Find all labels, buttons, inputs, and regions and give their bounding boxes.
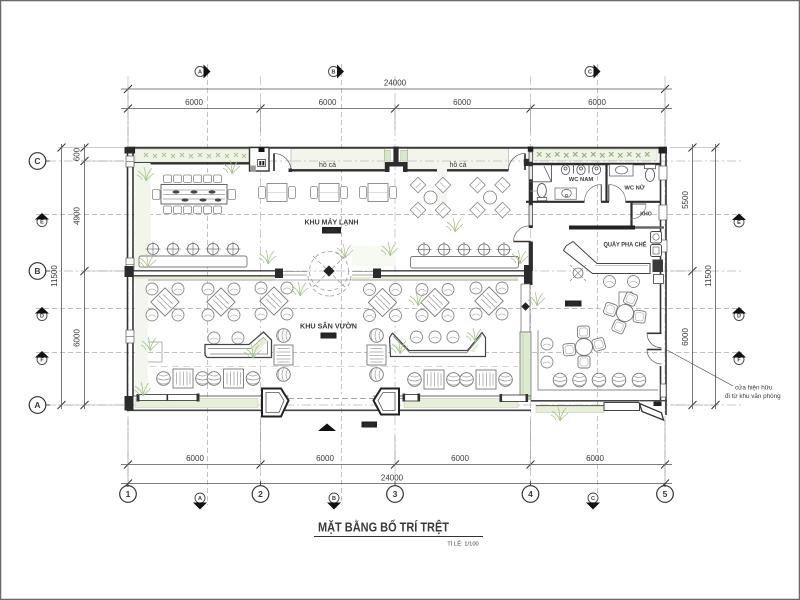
svg-text:hồ cá: hồ cá: [319, 160, 336, 169]
svg-text:4900: 4900: [73, 207, 82, 225]
svg-text:KHU SÂN VƯỜN: KHU SÂN VƯỜN: [300, 322, 357, 331]
svg-text:C: C: [588, 70, 592, 76]
svg-text:E: E: [737, 220, 741, 226]
svg-text:24000: 24000: [384, 79, 407, 88]
svg-text:QUẦY PHA CHẾ: QUẦY PHA CHẾ: [604, 242, 647, 249]
svg-text:đi từ khu văn phòng: đi từ khu văn phòng: [725, 393, 781, 400]
svg-text:6000: 6000: [681, 328, 690, 346]
svg-text:3: 3: [393, 489, 398, 499]
svg-text:Ø800: Ø800: [326, 228, 338, 233]
svg-text:A: A: [34, 400, 40, 410]
svg-text:Ø800: Ø800: [323, 333, 334, 338]
svg-text:D: D: [737, 314, 741, 320]
svg-text:B: B: [332, 496, 336, 502]
svg-text:6000: 6000: [186, 454, 204, 463]
svg-text:6000: 6000: [316, 454, 334, 463]
svg-text:11500: 11500: [50, 265, 59, 287]
svg-text:6000: 6000: [451, 454, 469, 463]
svg-text:6000: 6000: [319, 98, 337, 107]
svg-text:Ø800: Ø800: [364, 422, 375, 427]
svg-text:D: D: [40, 314, 44, 320]
svg-text:hồ cá: hồ cá: [449, 160, 466, 169]
svg-text:5500: 5500: [681, 191, 690, 209]
svg-text:2: 2: [258, 489, 263, 499]
svg-text:6000: 6000: [453, 98, 471, 107]
svg-text:C: C: [591, 496, 595, 502]
svg-text:6000: 6000: [73, 329, 82, 347]
svg-text:WC NỮ: WC NỮ: [624, 185, 644, 192]
svg-text:4: 4: [528, 489, 533, 499]
svg-text:A: A: [198, 496, 202, 502]
svg-text:5: 5: [663, 489, 668, 499]
svg-text:KHU MÁY LẠNH: KHU MÁY LẠNH: [305, 218, 359, 227]
svg-text:cửa hiện hữu: cửa hiện hữu: [735, 384, 773, 392]
svg-text:MẶT BẰNG BỐ TRÍ TRỆT: MẶT BẰNG BỐ TRÍ TRỆT: [318, 520, 449, 535]
svg-text:6000: 6000: [185, 98, 203, 107]
svg-text:WC NAM: WC NAM: [569, 177, 594, 183]
svg-text:1: 1: [126, 489, 131, 499]
svg-text:6000: 6000: [586, 454, 604, 463]
svg-text:E: E: [40, 220, 44, 226]
svg-text:C: C: [34, 156, 40, 166]
svg-text:Ø800: Ø800: [568, 301, 579, 306]
svg-text:11500: 11500: [704, 265, 713, 287]
svg-text:B: B: [332, 70, 336, 76]
svg-text:KHO: KHO: [640, 212, 652, 218]
svg-text:TỈ LỆ: 1/100: TỈ LỆ: 1/100: [447, 540, 479, 548]
svg-text:6000: 6000: [588, 98, 606, 107]
svg-text:600: 600: [73, 147, 82, 161]
svg-text:24000: 24000: [381, 474, 404, 483]
svg-text:A: A: [198, 70, 202, 76]
svg-text:B: B: [34, 266, 40, 276]
